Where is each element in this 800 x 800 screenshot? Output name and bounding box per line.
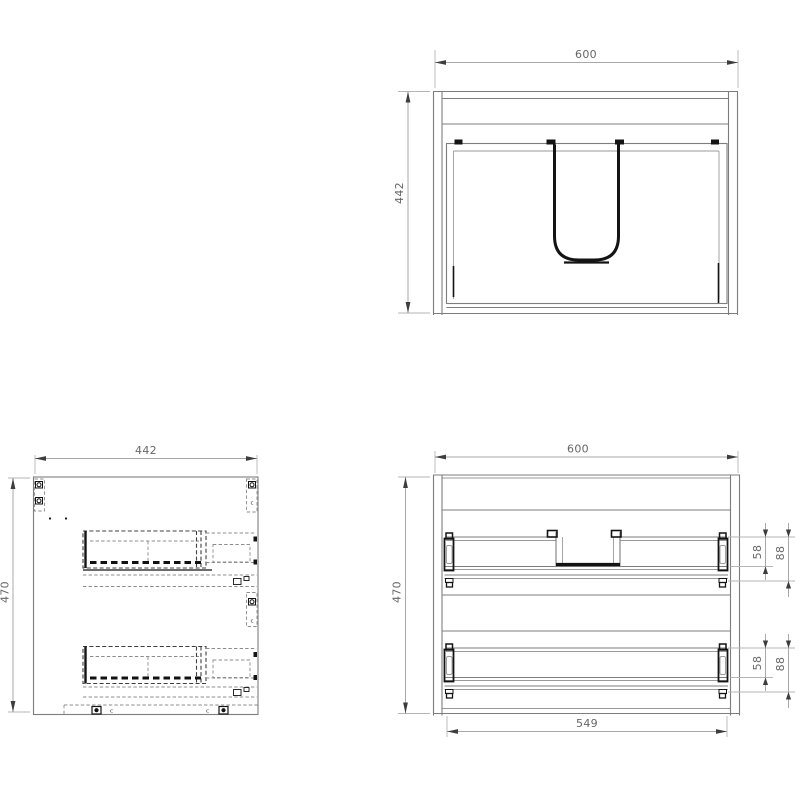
- drill-dot: [65, 517, 67, 519]
- cam-fitting-top-right: c: [247, 479, 258, 512]
- dim-label-upper-58: 58: [751, 545, 764, 560]
- lower-left-slide-clip: [445, 644, 454, 698]
- cam-mark: c: [110, 709, 113, 715]
- drill-dot: [49, 517, 51, 519]
- dim-label-side-depth: 442: [135, 444, 157, 457]
- drawing-svg: 600 442: [0, 0, 800, 800]
- cam-fitting-top-left: [35, 479, 45, 511]
- dim-label-inner-width: 549: [576, 717, 598, 730]
- clip-mark-icon: [615, 140, 624, 145]
- top-view: 600 442: [393, 48, 738, 315]
- cam-fitting-mid-right: c: [247, 593, 258, 627]
- upper-drawer-slide-hidden: [83, 531, 257, 587]
- lower-drawer-offset-dimensions: 58 88: [728, 634, 795, 708]
- clip-mark-icon: [547, 140, 556, 145]
- cam-mark: c: [250, 619, 253, 625]
- top-view-depth-dimension: 442: [393, 92, 430, 314]
- upper-left-slide-clip: [445, 533, 454, 587]
- lower-drawer-slide-hidden: [83, 647, 257, 698]
- top-view-inner-panel: [447, 144, 728, 308]
- front-view-inner-width-dimension: 549: [447, 716, 727, 737]
- siphon-cutout: [555, 145, 619, 263]
- bottom-hardware-strip: c c: [64, 705, 258, 715]
- front-view-width-dimension: 600: [435, 443, 738, 474]
- side-view-height-dimension: 470: [0, 478, 30, 712]
- top-view-carcass: [433, 92, 738, 316]
- cam-mark: c: [206, 709, 209, 715]
- upper-right-slide-clip: [719, 533, 728, 587]
- dim-label-lower-88: 88: [774, 657, 787, 672]
- upper-drawer-offset-dimensions: 58 88: [728, 523, 795, 597]
- clip-mark-icon: [455, 140, 463, 145]
- dim-label-upper-88: 88: [774, 546, 787, 561]
- siphon-recess-front: [548, 531, 622, 567]
- side-view-depth-dimension: 442: [35, 444, 257, 474]
- top-view-width-dimension: 600: [435, 48, 738, 88]
- cam-mark: c: [250, 501, 253, 507]
- lower-drawer-box: [445, 644, 729, 698]
- lower-right-slide-clip: [719, 644, 728, 698]
- upper-drawer-box: [445, 531, 729, 588]
- front-view-carcass: [433, 475, 740, 716]
- dim-label-top-depth: 442: [393, 182, 406, 204]
- front-view-height-dimension: 470: [391, 477, 431, 714]
- dim-label-lower-58: 58: [751, 656, 764, 671]
- clip-mark-icon: [711, 140, 719, 145]
- side-view: 442 470 c c: [0, 444, 258, 715]
- dim-label-front-width: 600: [567, 443, 589, 456]
- dim-label-top-width: 600: [575, 48, 597, 61]
- dim-label-side-height: 470: [0, 581, 12, 603]
- front-view: 600 470 549: [391, 443, 796, 738]
- technical-drawing-sheet: 600 442: [0, 0, 800, 800]
- dim-label-front-height: 470: [391, 581, 404, 603]
